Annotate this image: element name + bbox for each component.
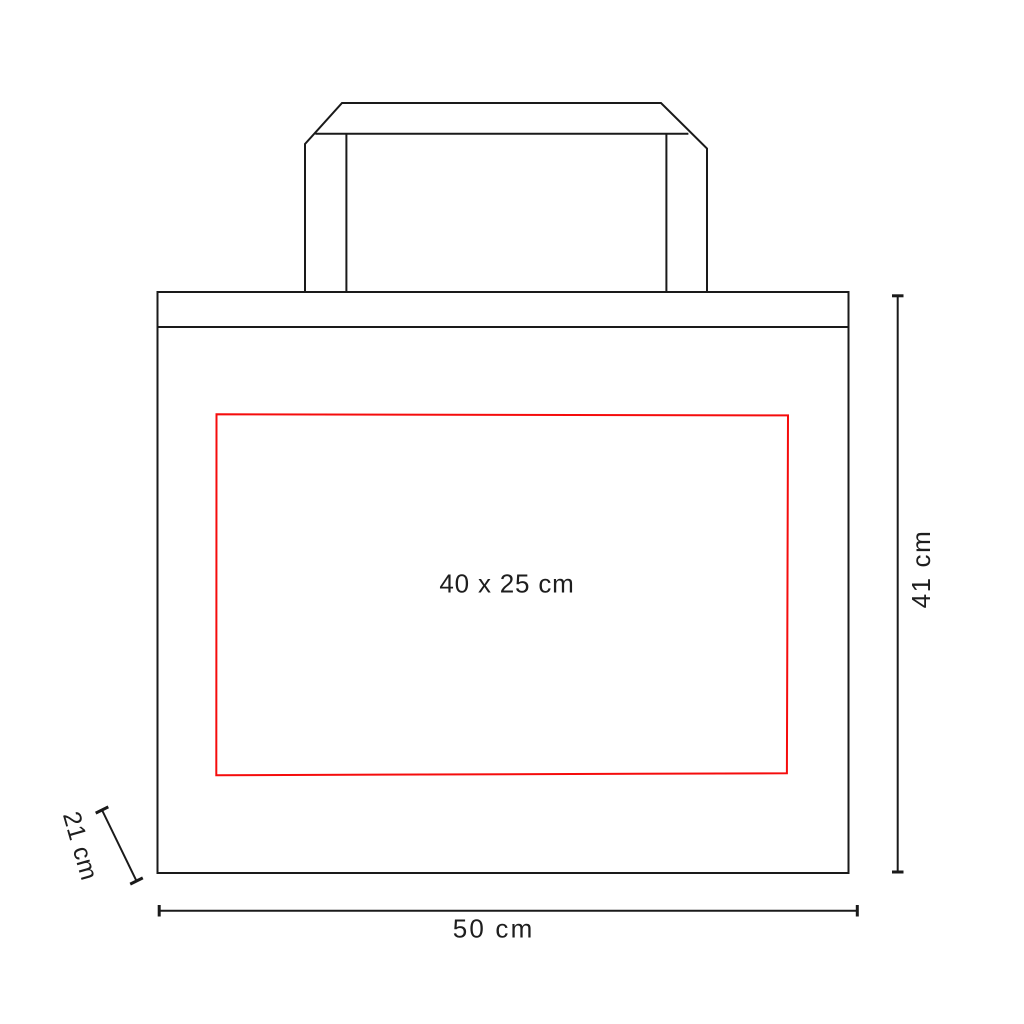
svg-text:40 x 25 cm: 40 x 25 cm <box>439 569 574 599</box>
svg-text:41 cm: 41 cm <box>906 530 936 609</box>
svg-text:50 cm: 50 cm <box>453 914 535 944</box>
